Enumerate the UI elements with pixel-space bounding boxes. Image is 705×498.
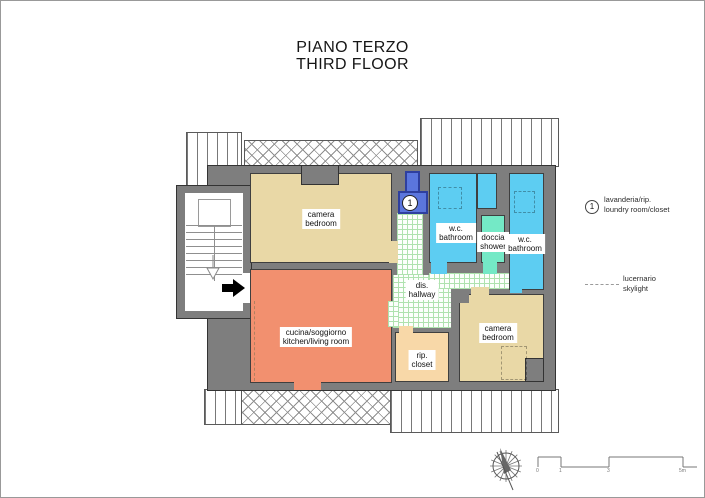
door-terrace [294,382,321,390]
legend-skylight-it: lucernario [623,274,656,284]
label-it: w.c. [439,224,473,233]
label-it: dis. [409,281,436,290]
legend-laundry-it: lavanderia/rip. [604,195,669,205]
stair-landing [198,199,231,227]
door-bedroom-top [389,241,398,263]
terrace-hatch-bottom [241,389,391,425]
door-kitchen-hall [388,301,398,327]
roof-hatch-bottom-left [204,389,242,425]
legend-skylight-en: skylight [623,284,656,294]
roof-hatch-bottom-right [390,389,559,433]
label-it: doccia [480,233,506,242]
room-kitchen-living [250,269,392,383]
label-it: w.c. [508,235,542,244]
floor-plan-sheet: PIANO TERZO THIRD FLOOR [0,0,705,498]
room-hallway-band [429,273,509,289]
label-en: bedroom [482,333,514,342]
label-en: bedroom [305,219,337,228]
label-en: shower [480,242,506,251]
label-it: camera [482,324,514,333]
wall-block-bedroom-bottom-se [525,358,544,382]
room-hallway-upper [397,213,423,275]
door-bedroom-bottom [471,287,489,295]
scale-bar [531,453,701,473]
label-it: rip. [412,351,433,360]
scale-tick-3: 3 [607,468,610,474]
label-it: cucina/soggiorno [283,328,349,337]
legend-skylight-dash [585,284,619,285]
roof-hatch-top-right [420,118,559,167]
label-en: kitchen/living room [283,337,349,346]
label-bedroom-bottom: camera bedroom [479,323,517,343]
label-it: camera [305,210,337,219]
scale-tick-0: 0 [536,468,539,474]
label-en: bathroom [439,233,473,242]
label-en: bathroom [508,244,542,253]
compass-rose-icon [487,444,525,494]
laundry-stem [405,171,420,193]
skylight-bedroom-bottom [501,346,527,380]
skylight-bathroom-left [438,187,462,209]
room-bathroom-left-ext [477,173,497,209]
stair-down-arrow-icon [206,255,220,281]
door-closet [399,326,413,333]
title-italian: PIANO TERZO [1,39,704,56]
label-bathroom-right: w.c. bathroom [505,234,545,254]
kitchen-dashed-line [254,301,255,381]
skylight-bathroom-right [514,191,535,213]
door-bathroom-left [431,262,447,274]
title-english: THIRD FLOOR [1,56,704,73]
legend-laundry-badge: 1 [585,200,599,214]
laundry-number-badge: 1 [402,195,418,211]
legend-laundry-en: loundry room/closet [604,205,669,215]
wall-notch-top [301,165,339,185]
door-shower [483,262,497,274]
wall-stub-bedroom-bottom-nw [456,294,469,303]
label-kitchen: cucina/soggiorno kitchen/living room [280,327,352,347]
label-hallway: dis. hallway [406,280,439,300]
label-en: closet [412,360,433,369]
scale-tick-5m: 5m [679,468,686,474]
label-bathroom-left: w.c. bathroom [436,223,476,243]
door-bathroom-right [510,285,522,293]
legend-laundry-text: lavanderia/rip. loundry room/closet [604,195,669,215]
label-closet: rip. closet [409,350,436,370]
scale-tick-1: 1 [559,468,562,474]
label-bedroom-top: camera bedroom [302,209,340,229]
entrance-arrow-icon [222,278,246,298]
page-title: PIANO TERZO THIRD FLOOR [1,39,704,73]
label-en: hallway [409,290,436,299]
legend-skylight-text: lucernario skylight [623,274,656,294]
